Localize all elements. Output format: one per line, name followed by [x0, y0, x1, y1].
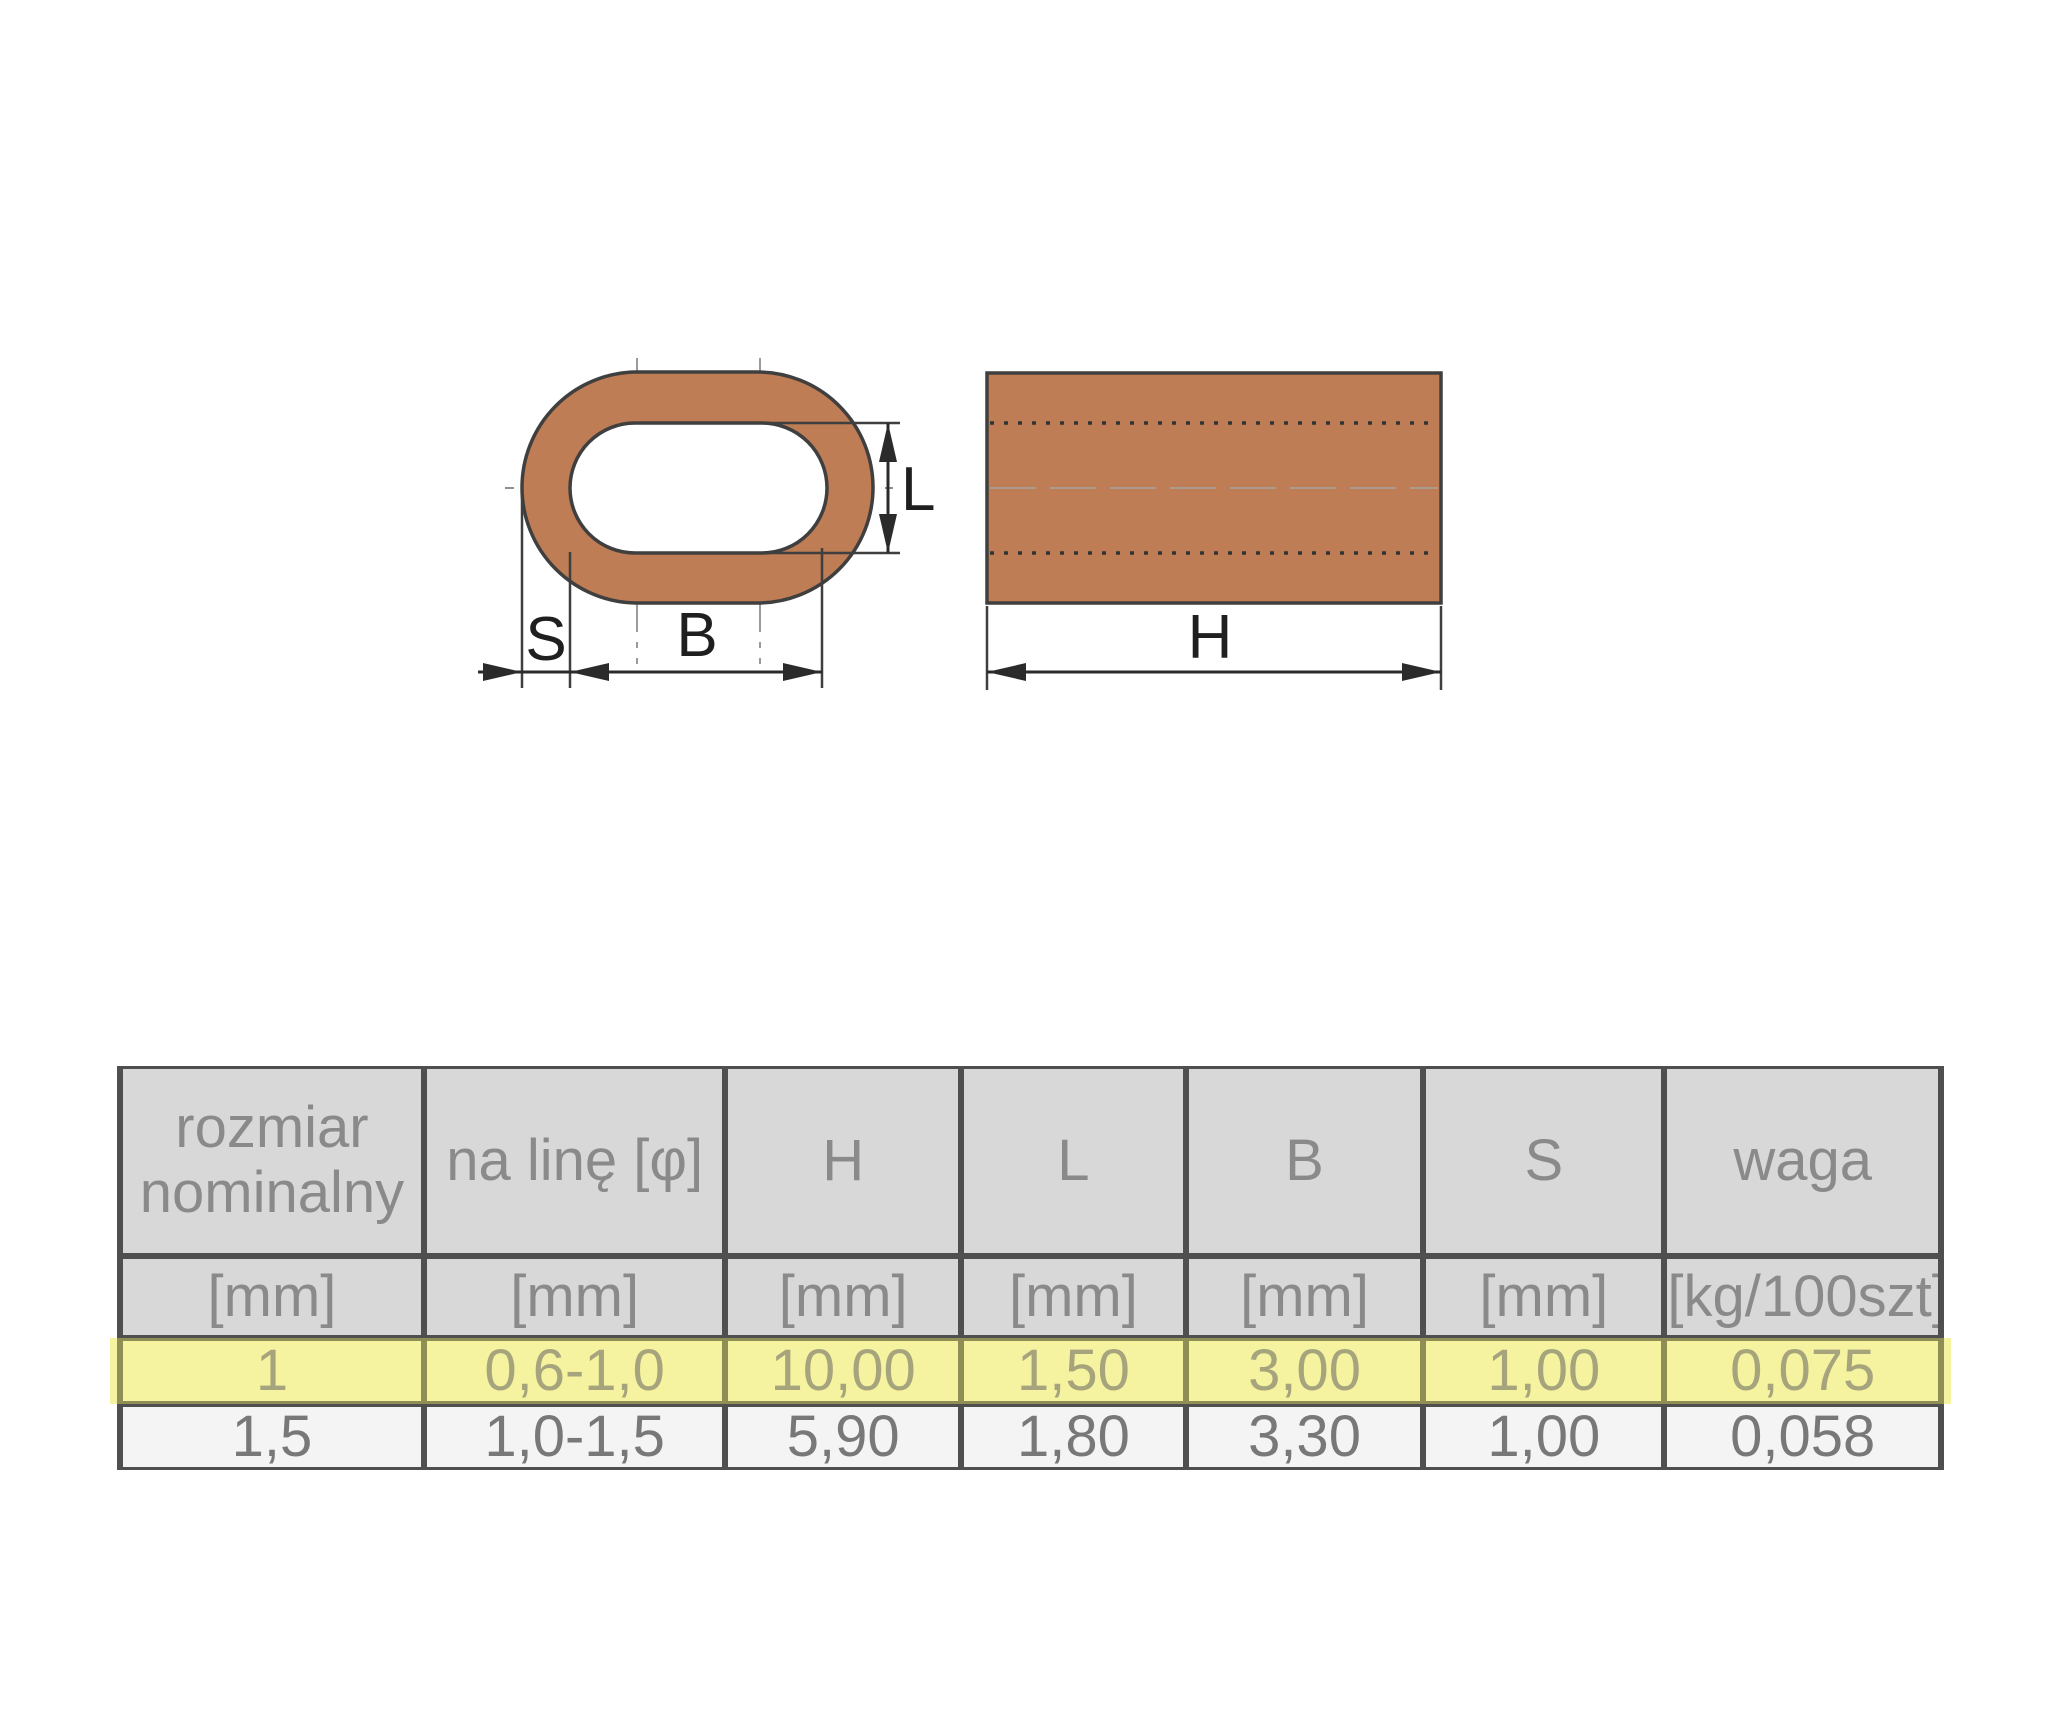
data-cell: 0,075: [1664, 1338, 1944, 1404]
arrowhead-right-icon: [783, 663, 822, 681]
data-cell: 1,50: [961, 1338, 1186, 1404]
dim-label-B: B: [676, 601, 717, 670]
data-cell: 1,80: [961, 1404, 1186, 1470]
datasheet-page: L S B H: [0, 0, 2048, 1716]
dim-label-S: S: [525, 605, 566, 674]
side-view: H: [987, 373, 1441, 690]
table-row-size-1: 1 0,6-1,0 10,00 1,50 3,00 1,00 0,075: [117, 1338, 1944, 1404]
arrowhead-left-icon: [987, 663, 1026, 681]
unit-cell: [mm]: [1186, 1256, 1424, 1338]
data-cell: 0,6-1,0: [424, 1338, 725, 1404]
data-cell: 0,058: [1664, 1404, 1944, 1470]
data-cell: 5,90: [725, 1404, 961, 1470]
unit-cell: [mm]: [117, 1256, 424, 1338]
dimension-L: L: [879, 423, 935, 553]
dimension-S-B: S B: [478, 601, 822, 681]
arrowhead-right-icon: [483, 663, 522, 681]
spec-table-container: rozmiar nominalny na linę [φ] H L B S wa…: [117, 1066, 1944, 1470]
arrowhead-right-icon: [1402, 663, 1441, 681]
data-cell: 3,30: [1186, 1404, 1424, 1470]
data-cell: 1,5: [117, 1404, 424, 1470]
unit-cell: [mm]: [424, 1256, 725, 1338]
data-cell: 1,00: [1423, 1338, 1664, 1404]
data-cell: 1: [117, 1338, 424, 1404]
col-header-L: L: [961, 1066, 1186, 1256]
data-cell: 10,00: [725, 1338, 961, 1404]
unit-cell: [mm]: [1423, 1256, 1664, 1338]
ferrule-bore: [570, 423, 827, 553]
dim-label-L: L: [901, 455, 935, 524]
units-row: [mm] [mm] [mm] [mm] [mm] [mm] [kg/100szt…: [117, 1256, 1944, 1338]
col-header-S: S: [1423, 1066, 1664, 1256]
dim-label-H: H: [1188, 603, 1233, 672]
col-header-H: H: [725, 1066, 961, 1256]
unit-cell: [kg/100szt]: [1664, 1256, 1944, 1338]
col-header-rozmiar-nominalny: rozmiar nominalny: [117, 1066, 424, 1256]
header-row: rozmiar nominalny na linę [φ] H L B S wa…: [117, 1066, 1944, 1256]
table-row-size-1-5: 1,5 1,0-1,5 5,90 1,80 3,30 1,00 0,058: [117, 1404, 1944, 1470]
spec-table: rozmiar nominalny na linę [φ] H L B S wa…: [117, 1066, 1944, 1470]
data-cell: 1,0-1,5: [424, 1404, 725, 1470]
col-header-na-line: na linę [φ]: [424, 1066, 725, 1256]
cross-section-view: L S B: [478, 358, 935, 688]
arrowhead-up-icon: [879, 423, 897, 462]
arrowhead-left-icon: [570, 663, 609, 681]
data-cell: 3,00: [1186, 1338, 1424, 1404]
arrowhead-down-icon: [879, 514, 897, 553]
data-cell: 1,00: [1423, 1404, 1664, 1470]
col-header-waga: waga: [1664, 1066, 1944, 1256]
col-header-B: B: [1186, 1066, 1424, 1256]
unit-cell: [mm]: [725, 1256, 961, 1338]
dimension-H: H: [987, 603, 1441, 681]
unit-cell: [mm]: [961, 1256, 1186, 1338]
